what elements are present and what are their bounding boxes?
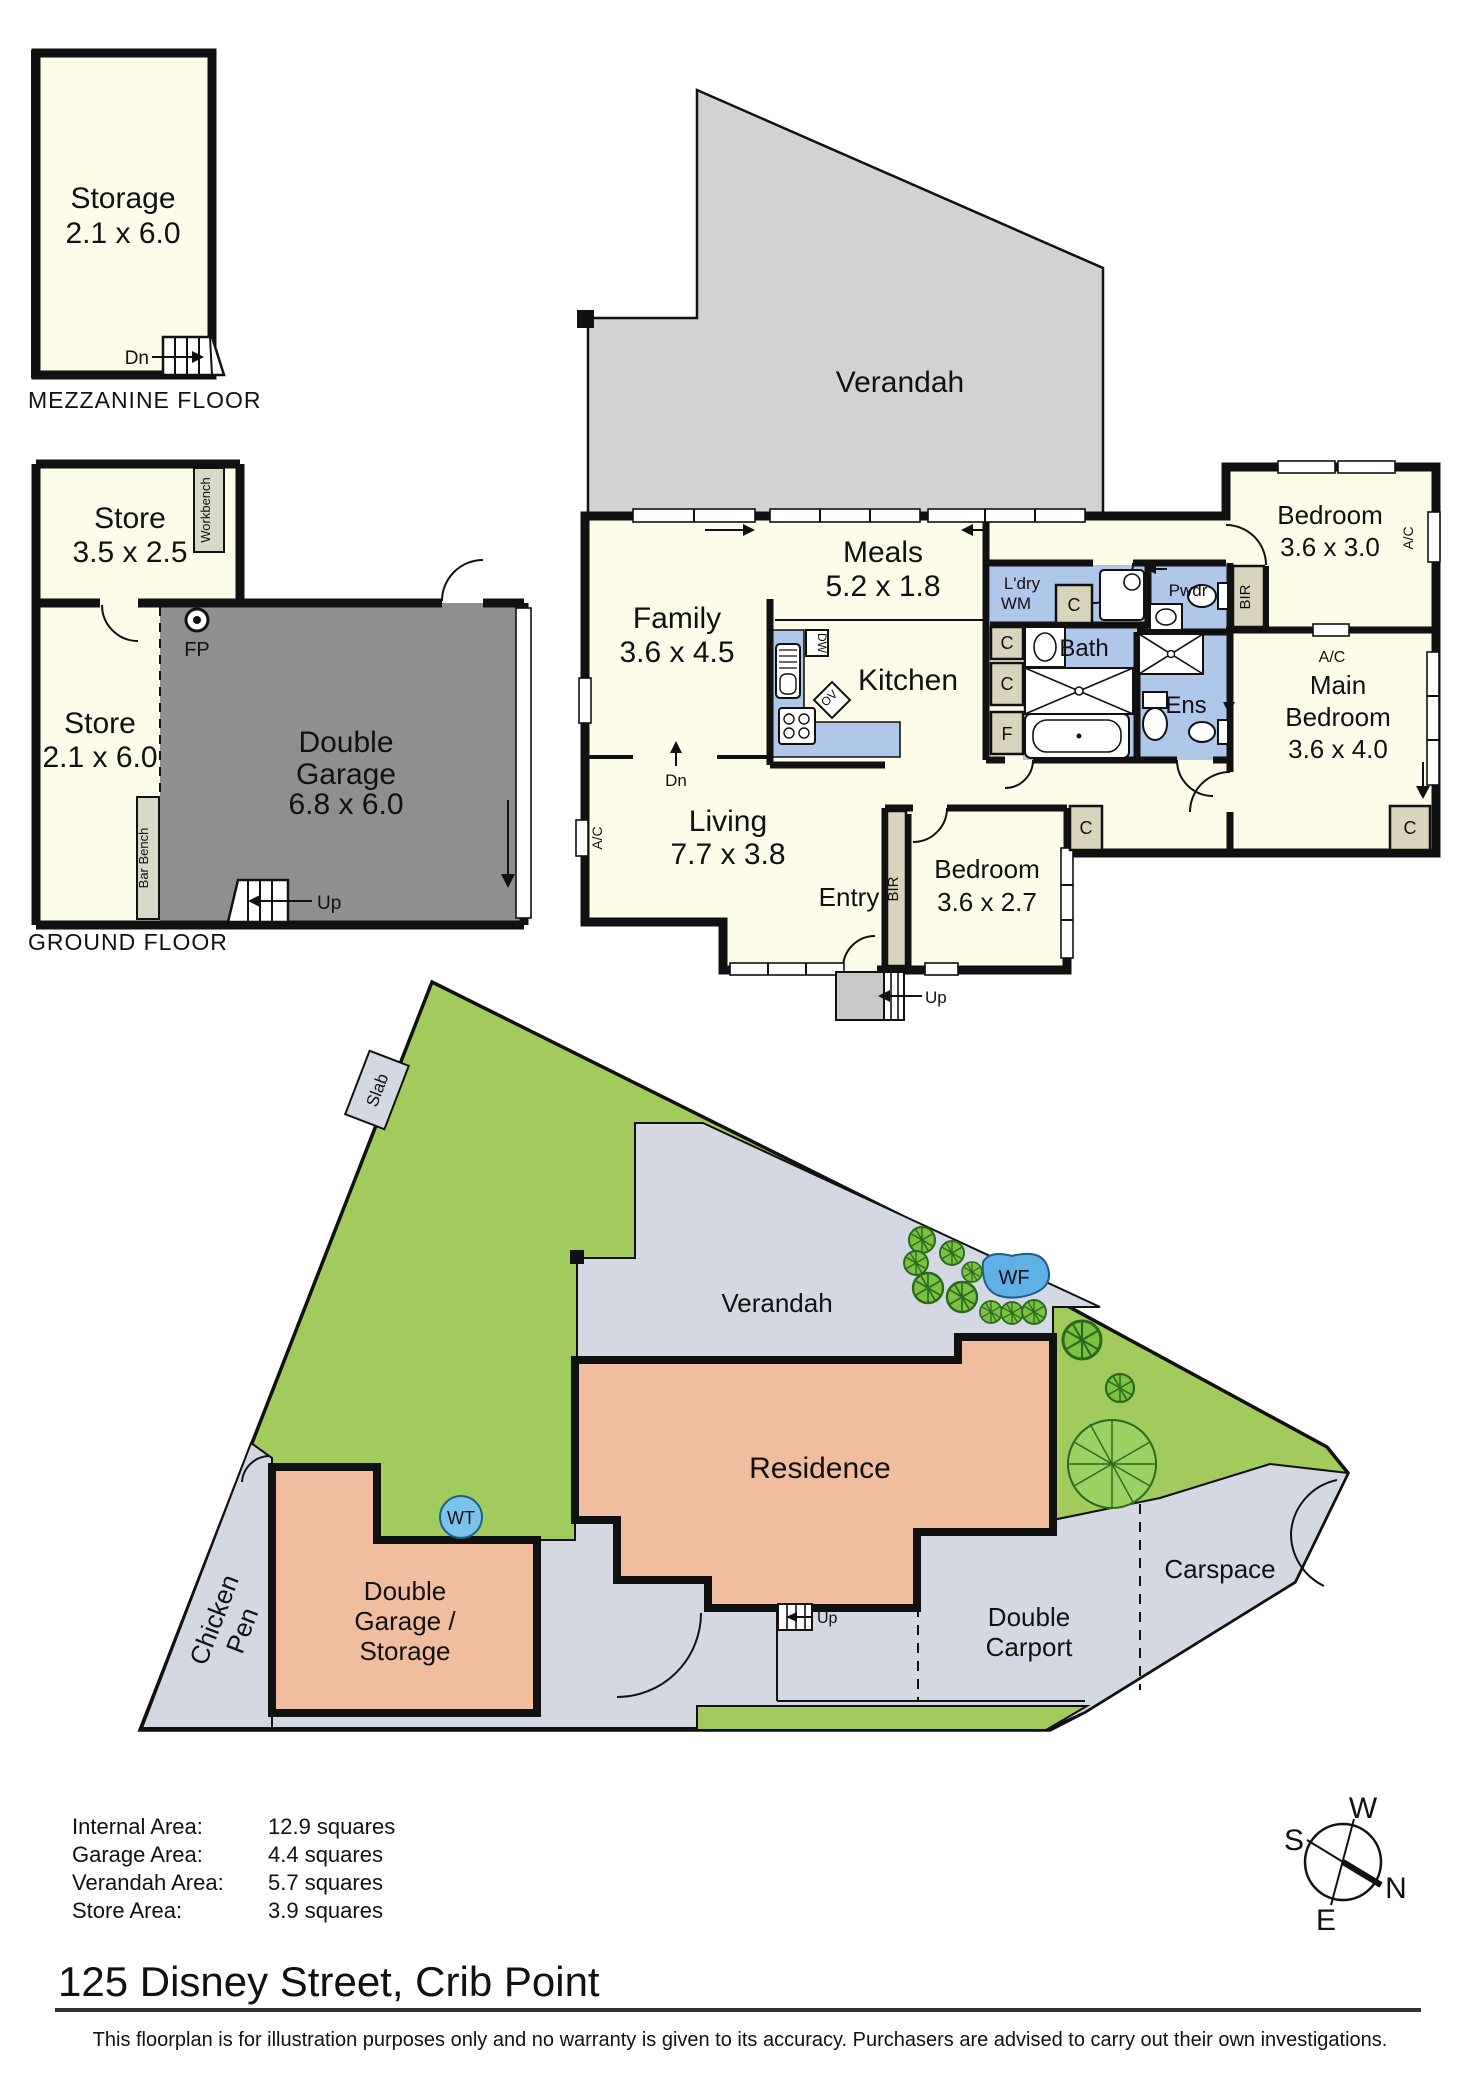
ac-unit-main-bedroom [1313,624,1349,636]
ground-floor-plan: Workbench FP Bar Bench Up Store 3.5 x 2.… [28,464,531,955]
meals-label: Meals [843,536,923,569]
main-dn-label: Dn [665,771,687,790]
garage-label-2: Garage [296,758,396,791]
site-verandah-area [577,1123,1100,1360]
ground-floor-title: GROUND FLOOR [28,929,228,955]
garage-label-1: Double [298,726,393,759]
kitchen-label: Kitchen [858,664,958,697]
summary-value-3: 3.9 squares [268,1898,383,1923]
site-stairs [778,1604,812,1630]
main-bedroom-label-1: Main [1310,670,1366,700]
verandah-post [577,310,594,328]
ac-left-label: A/C [589,826,605,849]
living-dims: 7.7 x 3.8 [670,838,785,871]
main-up-label: Up [925,988,947,1007]
summary-value-2: 5.7 squares [268,1870,383,1895]
summary-label-1: Garage Area: [72,1842,203,1867]
ldry-label: L'dry [1004,574,1041,593]
dw-label: DW [815,633,829,654]
cupboard-ldry: C [1068,595,1081,615]
living-label: Living [689,805,767,838]
chicken-pen-area [142,1443,272,1728]
family-dims: 3.6 x 4.5 [619,636,734,669]
bedroom2-dims: 3.6 x 2.7 [937,887,1037,917]
footer: 125 Disney Street, Crib Point This floor… [55,1958,1421,2051]
carspace-label: Carspace [1164,1554,1275,1584]
summary-label-2: Verandah Area: [72,1870,224,1895]
footer-divider [55,2008,1421,2012]
main-bedroom-label-2: Bedroom [1285,702,1391,732]
site-garage-label-2: Garage / [354,1606,456,1636]
ens-label: Ens [1165,692,1206,719]
mezzanine-floor-title: MEZZANINE FLOOR [28,387,262,413]
ac-unit-left [576,820,588,856]
disclaimer-text: This floorplan is for illustration purpo… [93,2029,1388,2051]
address-title: 125 Disney Street, Crib Point [58,1958,600,2005]
workbench-label: Workbench [198,477,213,543]
carport-label-2: Carport [986,1632,1073,1662]
compass-needle [1343,1862,1381,1885]
carport-label-1: Double [988,1602,1070,1632]
garage-door-arc [442,560,483,601]
storage-label: Storage [70,182,175,215]
bedroom2-label: Bedroom [934,854,1040,884]
bir-bottom-label: BIR [885,876,902,901]
site-plan: Verandah Slab Residence Double Garage / … [140,982,1348,1730]
compass: W S N E [1284,1792,1407,1937]
mezzanine-floor-plan: Storage 2.1 x 6.0 Dn MEZZANINE FLOOR [28,50,262,413]
store1-label: Store [94,502,166,535]
summary-value-1: 4.4 squares [268,1842,383,1867]
bar-bench-label: Bar Bench [136,828,151,889]
linen-f: F [1002,724,1013,744]
store2-label: Store [64,707,136,740]
mezzanine-stairs [152,337,224,375]
site-garage-label-3: Storage [359,1636,450,1666]
cupboard-1: C [1001,633,1014,653]
verandah-label: Verandah [836,366,964,399]
ac-bedroom1-label: A/C [1400,526,1416,549]
entry-label: Entry [819,882,880,912]
area-summary: Internal Area: 12.9 squares Garage Area:… [72,1814,395,1923]
floorplan-page: Storage 2.1 x 6.0 Dn MEZZANINE FLOOR Wor… [0,0,1472,2083]
summary-label-3: Store Area: [72,1898,182,1923]
cupboard-main-bedroom: C [1404,818,1417,838]
wm-label: WM [1001,594,1031,613]
storage-left-wall [31,50,39,378]
family-label: Family [633,602,721,635]
compass-w: W [1349,1792,1378,1825]
store1-dims: 3.5 x 2.5 [72,536,187,569]
main-floor-plan: Verandah [576,90,1440,1020]
entry-stairs [836,972,922,1020]
pwdr-label: Pwdr [1169,581,1208,600]
cupboard-2: C [1001,674,1014,694]
wf-label: WF [998,1267,1029,1289]
wt-label: WT [447,1508,475,1528]
bath-label: Bath [1059,635,1108,662]
ac-unit-bedroom1 [1428,512,1440,562]
bedroom1-dims: 3.6 x 3.0 [1280,532,1380,562]
ac-main-label: A/C [1319,649,1346,666]
site-up-label: Up [817,1610,838,1627]
compass-n: N [1385,1872,1407,1905]
mezzanine-dn-label: Dn [125,348,149,369]
summary-value-0: 12.9 squares [268,1814,395,1839]
residence-label: Residence [749,1452,891,1485]
main-bedroom-dims: 3.6 x 4.0 [1288,734,1388,764]
bedroom1-label: Bedroom [1277,500,1383,530]
garage-up-label: Up [317,893,341,914]
site-verandah-label: Verandah [721,1288,832,1318]
garage-dims: 6.8 x 6.0 [288,788,403,821]
verandah-area [588,90,1103,516]
garage-roller-door [516,608,531,918]
fp-label: FP [184,639,210,661]
cupboard-hall: C [1080,818,1093,838]
summary-label-0: Internal Area: [72,1814,203,1839]
meals-dims: 5.2 x 1.8 [825,570,940,603]
store2-dims: 2.1 x 6.0 [42,741,157,774]
garden-strip [697,1706,1087,1730]
bir-top-label: BIR [1237,584,1254,609]
compass-s: S [1284,1824,1304,1857]
compass-e: E [1316,1904,1336,1937]
site-garage-label-1: Double [364,1576,446,1606]
storage-dims: 2.1 x 6.0 [65,217,180,250]
